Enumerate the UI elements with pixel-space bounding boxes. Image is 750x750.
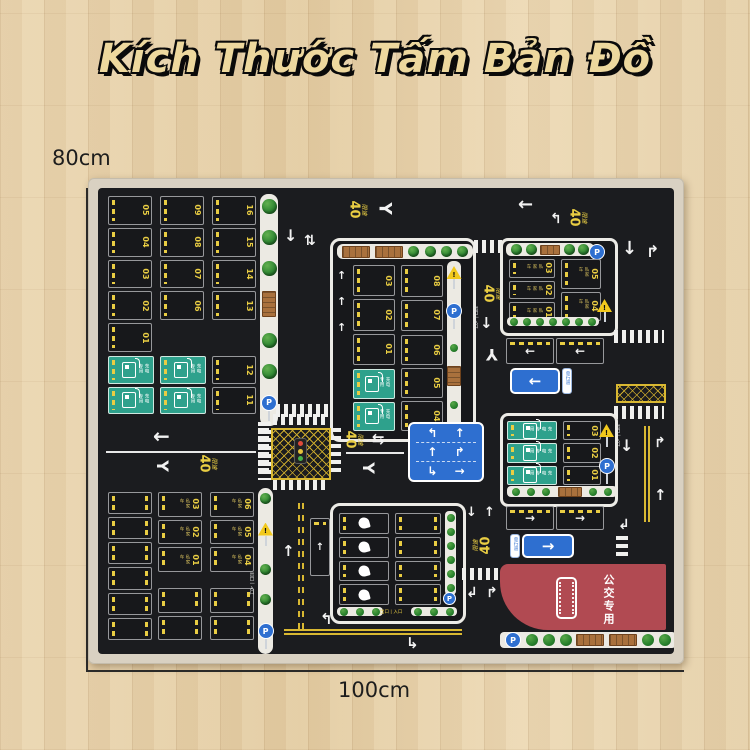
parking-stall (395, 513, 441, 534)
stall-number: 05 (141, 205, 150, 216)
stall-divider-line (214, 524, 217, 541)
speed-limit-value: 40 (348, 200, 361, 218)
parking-column: 030201 (353, 265, 395, 365)
exit-entry-marking: 出口 | 入口 (248, 572, 254, 594)
stall-divider-line (162, 524, 165, 541)
stall-divider-line (405, 405, 408, 427)
turn-arrow-icon: ↱ (455, 446, 465, 458)
warning-triangle-icon (447, 266, 462, 279)
bush-icon (575, 318, 583, 326)
parking-column (395, 513, 441, 605)
parking-column: 16151413 (212, 196, 256, 320)
bush-row (507, 317, 599, 326)
stall-divider-line (112, 521, 115, 535)
charging-pump-icon (174, 362, 188, 378)
bush-icon (543, 634, 555, 646)
stall-divider-line (513, 306, 516, 317)
stall-number: 15 (245, 237, 254, 248)
stall-number: 08 (432, 275, 441, 286)
lane-arrows-row: ↑↱ (410, 446, 482, 458)
bench-icon (558, 487, 582, 497)
exit-entry-marking: 出口 | 入口 (472, 306, 478, 328)
parking-stall: 充电专用 (507, 443, 557, 462)
stall-label: 充电专用 (378, 377, 390, 391)
bus-lane-stall: ↑ (310, 518, 330, 576)
stall-label: 私家车 (525, 264, 543, 272)
parking-stall: ← (556, 338, 604, 364)
charging-pump-icon (122, 392, 136, 408)
charging-stalls: 充电专用充电专用充电专用 (507, 421, 557, 485)
bus-only-label: 公交专用 (600, 574, 616, 626)
sign-pole (606, 437, 608, 447)
bush-icon (447, 584, 455, 592)
bench-icon (540, 245, 560, 255)
sign-pole (268, 411, 270, 421)
parking-lot: ↑ ↑ ↑ 030201 充电专用充电专用 0807 060504 P (330, 238, 476, 442)
stall-label: 充电专用 (528, 449, 552, 458)
parking-stall (339, 537, 389, 558)
stall-number: 03 (141, 268, 150, 279)
speed-limit-value: 40 (568, 208, 581, 226)
crosswalk (273, 479, 327, 490)
stall-label: 私家车 (230, 554, 242, 565)
stall-divider-line (112, 264, 115, 285)
stall-divider-line (216, 232, 219, 253)
bush-column (445, 511, 456, 595)
center-line (284, 633, 462, 635)
stall-divider-line (214, 620, 217, 637)
stall-divider-line (112, 295, 115, 316)
bush-icon (510, 318, 518, 326)
stall-divider-line (399, 541, 402, 554)
stall-divider-line (164, 391, 167, 411)
stall-divider-line (164, 232, 167, 253)
stall-divider-line (511, 447, 514, 458)
stall-divider-line (162, 620, 165, 637)
one-way-sign: 单行道 → (510, 534, 574, 558)
parking-column: 05私家车04私家车 (561, 259, 601, 321)
fork-arrow-icon: Y (360, 462, 376, 474)
parking-column: 030201 (563, 421, 601, 485)
crosswalk (258, 428, 269, 476)
stall-number: 12 (245, 364, 254, 375)
arrow-left-icon: ← (525, 344, 535, 358)
no-stopping-hatch (616, 384, 666, 403)
tree-icon (511, 244, 522, 255)
crosswalk (462, 568, 500, 580)
parking-stall: 充电专用 (108, 356, 154, 384)
arrow-up-icon: ↑ (337, 321, 346, 334)
stall-divider-line (565, 296, 568, 318)
parking-sign-face: P (258, 623, 274, 639)
road-map: 0504030201 09080706 16151413 充电专用充电专用 充电… (98, 188, 674, 654)
parking-stall: 07 (160, 260, 204, 289)
tree-icon (578, 244, 589, 255)
bush-icon (560, 634, 572, 646)
parking-column: 0504030201 (108, 196, 152, 352)
stall-divider-line (216, 264, 219, 285)
arrow-up-icon: ↑ (427, 446, 437, 458)
stall-number: 09 (193, 205, 202, 216)
stall-divider-line (164, 360, 167, 380)
parking-sign: P (258, 623, 274, 649)
charging-stalls: 充电专用充电专用 (160, 356, 206, 414)
arrow-right-icon: → (525, 511, 535, 525)
stall-divider-line (112, 622, 115, 636)
stall-divider-line (405, 304, 408, 328)
bush-icon (356, 608, 364, 616)
stall-divider-line (162, 496, 165, 513)
stall-divider-line (112, 327, 115, 348)
stall-label: 私家车 (230, 499, 242, 510)
speed-limit-marking: 限速40 (348, 200, 367, 218)
stall-number: 01 (544, 306, 553, 317)
stall-divider-line (216, 360, 219, 380)
speed-limit-marking: 限速40 (344, 430, 363, 448)
stall-divider-line (405, 339, 408, 361)
tree-icon (262, 333, 277, 348)
stall-divider-line (162, 551, 165, 568)
lane-dashes (298, 503, 300, 635)
parking-column (108, 492, 152, 640)
parking-column (158, 588, 202, 640)
stall-number: 06 (243, 499, 252, 510)
sign-pole (604, 312, 606, 322)
stall-divider-line (343, 588, 346, 601)
sign-pole (265, 639, 267, 649)
green-strip (337, 244, 473, 259)
exit-entry-marking: 出口 | 入口 (614, 424, 620, 446)
arrow-up-icon: ↑ (455, 427, 465, 439)
parking-column (339, 513, 389, 605)
parking-stall (108, 593, 152, 615)
green-strip (506, 243, 594, 256)
stall-divider-line (314, 522, 326, 525)
turn-arrow-icon: ↳ (406, 636, 419, 651)
parking-stall: → (506, 506, 554, 530)
parking-stall: 03私家车 (509, 259, 555, 278)
stall-label: 私家车 (178, 526, 190, 537)
bush-icon (536, 318, 544, 326)
tree-icon (564, 244, 575, 255)
bus-only-zone: 公交专用 (500, 564, 666, 630)
parking-stall: 充电专用 (108, 387, 154, 415)
bench-icon (447, 366, 461, 386)
stall-number: 11 (245, 395, 254, 406)
parking-stall: 02私家车 (158, 520, 202, 545)
lane-divider (416, 461, 476, 462)
parking-stall: 03私家车 (158, 492, 202, 517)
fork-arrow-icon: Y (486, 346, 498, 362)
stall-divider-line (357, 303, 360, 326)
charging-stalls: 充电专用充电专用 (353, 369, 395, 431)
warning-triangle-icon (599, 424, 614, 437)
stall-divider-line (112, 546, 115, 560)
charging-pump-icon (122, 362, 136, 378)
fork-arrow-icon: Y (376, 202, 393, 214)
stall-label: 充电专用 (528, 426, 552, 435)
parking-sign-face: P (505, 632, 521, 648)
parking-stall (395, 537, 441, 558)
parking-stall (158, 616, 202, 641)
speed-limit-marking: 限速40 (482, 284, 501, 302)
stall-number: 05 (432, 377, 441, 388)
parking-stall: 03 (353, 265, 395, 296)
stall-divider-line (405, 372, 408, 394)
stall-number: 03 (384, 275, 393, 286)
stall-label: 私家车 (230, 526, 242, 537)
stall-divider-line (511, 425, 514, 436)
turn-arrow-icon: ↰ (427, 427, 437, 439)
tree-icon (457, 246, 468, 257)
stall-divider-line (513, 285, 516, 296)
parking-stall (108, 517, 152, 539)
parking-stall: 06 (401, 335, 443, 365)
arrow-down-icon: ↓ (622, 240, 637, 258)
parking-stall: 09 (160, 196, 204, 225)
stall-divider-line (513, 263, 516, 274)
lane-line (346, 452, 404, 454)
stall-divider-line (164, 295, 167, 316)
yellow-light (298, 449, 303, 454)
bush-icon (447, 570, 455, 578)
bush-icon (450, 401, 458, 409)
speed-limit-marking: 限速40 (198, 454, 217, 472)
tree-icon (425, 246, 436, 257)
parking-stall: 充电专用 (160, 356, 206, 384)
stall-number: 01 (191, 554, 200, 565)
stall-divider-line (405, 269, 408, 293)
parking-stall: → (556, 506, 604, 530)
parking-stall: 01 (108, 323, 152, 352)
parking-stall (108, 492, 152, 514)
stall-divider-line (214, 551, 217, 568)
stall-number: 04 (432, 410, 441, 421)
parking-lot: P 03私家车02私家车01私家车 05私家车04私家车 (500, 238, 618, 336)
sign-pole (453, 319, 455, 329)
arrow-up-down-icon: ⇅ (304, 234, 316, 248)
warning-sign (599, 424, 614, 447)
stall-number: 02 (590, 447, 599, 458)
warning-sign (447, 266, 462, 289)
parking-stall: 16 (212, 196, 256, 225)
stall-divider-line (399, 565, 402, 578)
parking-stall: 07 (401, 300, 443, 332)
bush-icon (447, 528, 455, 536)
parking-column: 1211 (212, 356, 256, 414)
parking-stall: 06 (160, 291, 204, 320)
one-way-label: 单行道 (510, 534, 520, 558)
parking-stall (339, 584, 389, 605)
parking-sign: P (446, 303, 462, 329)
parking-stall: 02 (563, 443, 601, 462)
parking-stall: 15 (212, 228, 256, 257)
turn-arrow-icon: ↱ (654, 436, 666, 450)
parking-stall: 05私家车 (210, 520, 254, 545)
parking-column: 0807 (401, 265, 443, 331)
stall-divider-line (357, 373, 360, 395)
bush-icon (512, 488, 520, 496)
crosswalk (330, 428, 341, 476)
bench-icon (342, 246, 370, 258)
stall-divider-line (357, 406, 360, 428)
tree-icon (260, 594, 271, 605)
turn-arrow-icon: ↱ (646, 244, 659, 260)
duck-icon (357, 540, 370, 553)
speed-limit-marking: 限速40 (568, 208, 587, 226)
arrow-left-icon: ← (510, 368, 560, 394)
merge-arrows-icon: ⇆ (372, 432, 385, 447)
stall-divider-line (112, 597, 115, 611)
stall-number: 06 (432, 344, 441, 355)
fork-arrow-icon: Y (154, 460, 170, 472)
stall-number: 02 (191, 526, 200, 537)
stall-divider-line (112, 571, 115, 585)
parking-stall (108, 542, 152, 564)
arrow-left-icon: ← (518, 196, 533, 214)
arrow-down-icon: ↓ (620, 438, 633, 454)
bench-icon (576, 634, 604, 646)
lane-arrows-row: ↰↑ (410, 427, 482, 439)
speed-limit-value: 40 (198, 454, 211, 472)
sign-pole (606, 474, 608, 484)
stall-divider-line (567, 425, 570, 436)
parking-column (210, 588, 254, 640)
green-strip: P (260, 194, 278, 426)
parking-sign: P (599, 458, 615, 484)
stall-number: 02 (544, 284, 553, 295)
parking-stall: 05 (401, 368, 443, 398)
stall-divider-line (343, 517, 346, 530)
stall-label: 充电专用 (189, 363, 201, 376)
charging-lot: 充电专用充电专用充电专用 030201 P (500, 413, 618, 507)
stall-number: 01 (384, 344, 393, 355)
bush-icon (430, 608, 438, 616)
parking-stall: 充电专用 (160, 387, 206, 415)
stall-label: 充电专用 (378, 409, 390, 423)
parking-stall (395, 561, 441, 582)
stall-divider-line (112, 391, 115, 411)
traffic-light-icon (294, 438, 307, 464)
tree-icon (260, 564, 271, 575)
tree-icon (262, 261, 277, 276)
arrow-right-icon: → (522, 534, 574, 558)
arrow-up-icon: ↑ (337, 295, 346, 308)
stall-label: 私家车 (525, 307, 543, 315)
bench-icon (609, 634, 637, 646)
stall-number: 02 (141, 300, 150, 311)
bush-icon (604, 488, 612, 496)
stall-number: 08 (193, 237, 202, 248)
crosswalk (614, 406, 664, 419)
bush-row (337, 607, 383, 616)
bush-icon (523, 318, 531, 326)
parking-stall (210, 616, 254, 641)
parking-stall (158, 588, 202, 613)
stall-divider-line (216, 295, 219, 316)
stall-number: 06 (193, 300, 202, 311)
stall-divider-line (343, 541, 346, 554)
bush-icon (642, 634, 654, 646)
arrow-left-icon: ← (153, 426, 170, 446)
bush-icon (447, 556, 455, 564)
page-title: Kích Thước Tấm Bản Đồ (0, 36, 750, 82)
parking-stall (339, 561, 389, 582)
stall-divider-line (214, 496, 217, 513)
charging-pump-icon (365, 376, 379, 392)
parking-stall: 01 (563, 466, 601, 485)
parking-stall: 02私家车 (509, 281, 555, 300)
tree-icon (262, 230, 277, 245)
parking-stall: 08 (160, 228, 204, 257)
parking-stall (108, 567, 152, 589)
parking-column: 03私家车02私家车01私家车 (158, 492, 202, 572)
turn-arrow-icon: ↰ (320, 612, 333, 627)
product-photo: Kích Thước Tấm Bản Đồ 80cm 100cm 0504030… (0, 0, 750, 750)
parking-sign: P (505, 632, 521, 648)
stall-divider-line (560, 342, 600, 345)
stall-divider-line (343, 565, 346, 578)
stall-label: 私家车 (577, 299, 589, 313)
duck-icon (357, 588, 370, 601)
green-strip (507, 486, 617, 497)
stall-number: 03 (590, 425, 599, 436)
stall-divider-line (399, 517, 402, 530)
parking-stall: 01 (353, 334, 395, 365)
bush-icon (340, 608, 348, 616)
stall-divider-line (560, 510, 600, 513)
stall-number: 03 (191, 499, 200, 510)
stall-number: 07 (193, 268, 202, 279)
stall-label: 充电专用 (137, 394, 149, 407)
parking-lot: P 出口 | 入口 (330, 503, 466, 624)
stall-divider-line (565, 263, 568, 285)
stall-divider-line (216, 200, 219, 221)
warning-triangle-icon (258, 523, 273, 536)
red-light (298, 441, 303, 446)
parking-stall (108, 618, 152, 640)
turn-arrow-icon: ↰ (550, 212, 562, 226)
tree-icon (262, 199, 277, 214)
parking-sign-face: P (599, 458, 615, 474)
parking-stall: 充电专用 (507, 466, 557, 485)
bush-icon (526, 634, 538, 646)
exit-entry-marking: 出口 | 入口 (380, 609, 402, 615)
sign-pole (265, 536, 267, 546)
arrow-up-icon: ↑ (282, 544, 295, 559)
one-way-sign: ← 单行道 (510, 368, 572, 394)
bush-icon (450, 344, 458, 352)
charging-stalls: 充电专用充电专用 (108, 356, 154, 414)
bush-icon (542, 488, 550, 496)
parking-column: 09080706 (160, 196, 204, 320)
parking-column: 03私家车02私家车01私家车 (509, 259, 555, 321)
parking-stall: ← (506, 338, 554, 364)
parking-sign: P (443, 592, 456, 605)
bush-icon (447, 542, 455, 550)
arrow-up-icon: ↑ (337, 269, 346, 282)
stall-number: 14 (245, 268, 254, 279)
stall-label: 私家车 (525, 286, 543, 294)
stall-divider-line (567, 470, 570, 481)
stall-label: 私家车 (577, 267, 589, 281)
arrow-left-icon: ← (575, 344, 585, 358)
parking-stall: 13 (212, 291, 256, 320)
bush-icon (446, 608, 454, 616)
stall-number: 05 (243, 526, 252, 537)
parking-stall (339, 513, 389, 534)
stall-divider-line (357, 338, 360, 361)
